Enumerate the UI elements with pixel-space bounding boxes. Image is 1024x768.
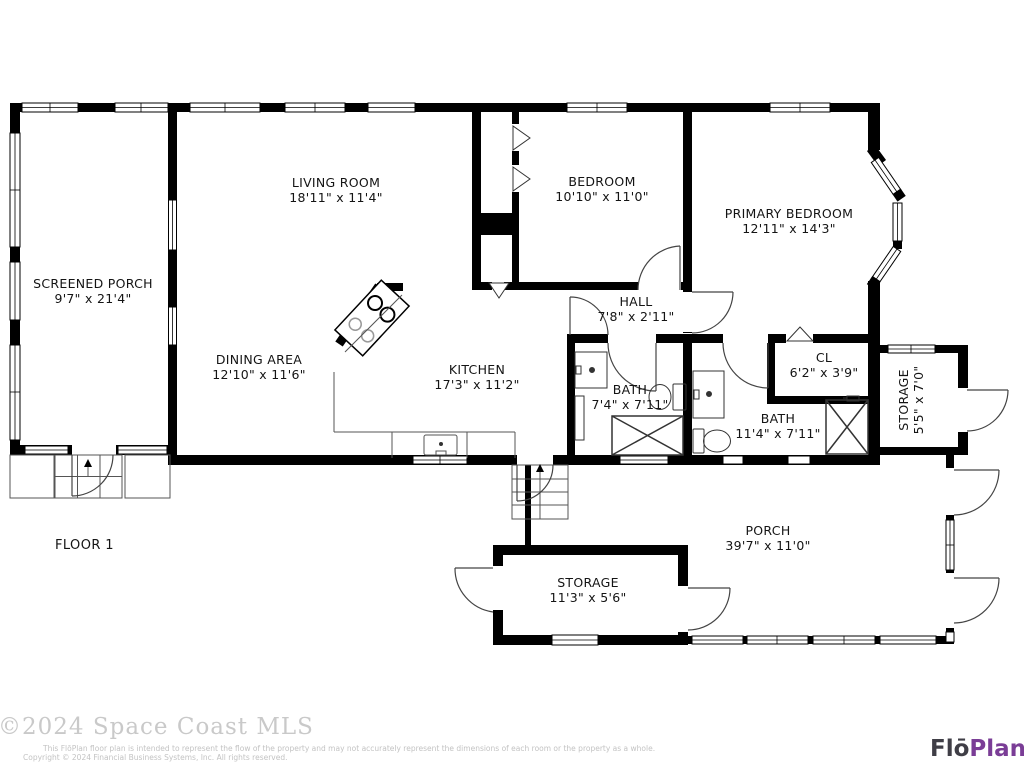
room-label-primary-bedroom: PRIMARY BEDROOM 12'11" x 14'3" — [725, 206, 854, 236]
floor-plan-page: SCREENED PORCH 9'7" x 21'4" LIVING ROOM … — [0, 0, 1024, 768]
room-label-porch: PORCH 39'7" x 11'0" — [725, 523, 810, 553]
floplan-logo-plan: Plan — [969, 736, 1024, 762]
room-label-storage-side: STORAGE 5'5" x 7'0" — [896, 366, 926, 435]
mls-watermark: ©2024 Space Coast MLS — [0, 714, 314, 740]
stove — [335, 280, 409, 356]
floplan-logo-flo: Flō — [930, 736, 969, 762]
room-label-living-room: LIVING ROOM 18'11" x 11'4" — [289, 175, 383, 205]
kitchen-sink-drain — [439, 442, 443, 446]
steps-up-arrow — [84, 459, 92, 467]
room-label-dining-area: DINING AREA 12'10" x 11'6" — [212, 352, 306, 382]
disclaimer-line-1: This FlōPlan floor plan is intended to r… — [43, 744, 655, 753]
room-label-hall: HALL 7'8" x 2'11" — [597, 294, 674, 324]
room-label-kitchen: KITCHEN 17'3" x 11'2" — [434, 362, 519, 392]
room-label-bedroom: BEDROOM 10'10" x 11'0" — [555, 174, 649, 204]
floplan-logo: FlōPlan — [930, 736, 1024, 762]
disclaimer-line-2: Copyright © 2024 Financial Business Syst… — [23, 753, 288, 762]
room-label-closet: CL 6'2" x 3'9" — [790, 350, 859, 380]
room-label-bath-hall: BATH 7'4" x 7'11" — [591, 382, 668, 412]
room-label-storage-under-porch: STORAGE 11'3" x 5'6" — [549, 575, 626, 605]
room-label-screened-porch: SCREENED PORCH 9'7" x 21'4" — [33, 276, 153, 306]
room-label-bath-primary: BATH 11'4" x 7'11" — [735, 411, 820, 441]
bay-window — [867, 148, 906, 290]
floor-label: FLOOR 1 — [55, 538, 114, 553]
